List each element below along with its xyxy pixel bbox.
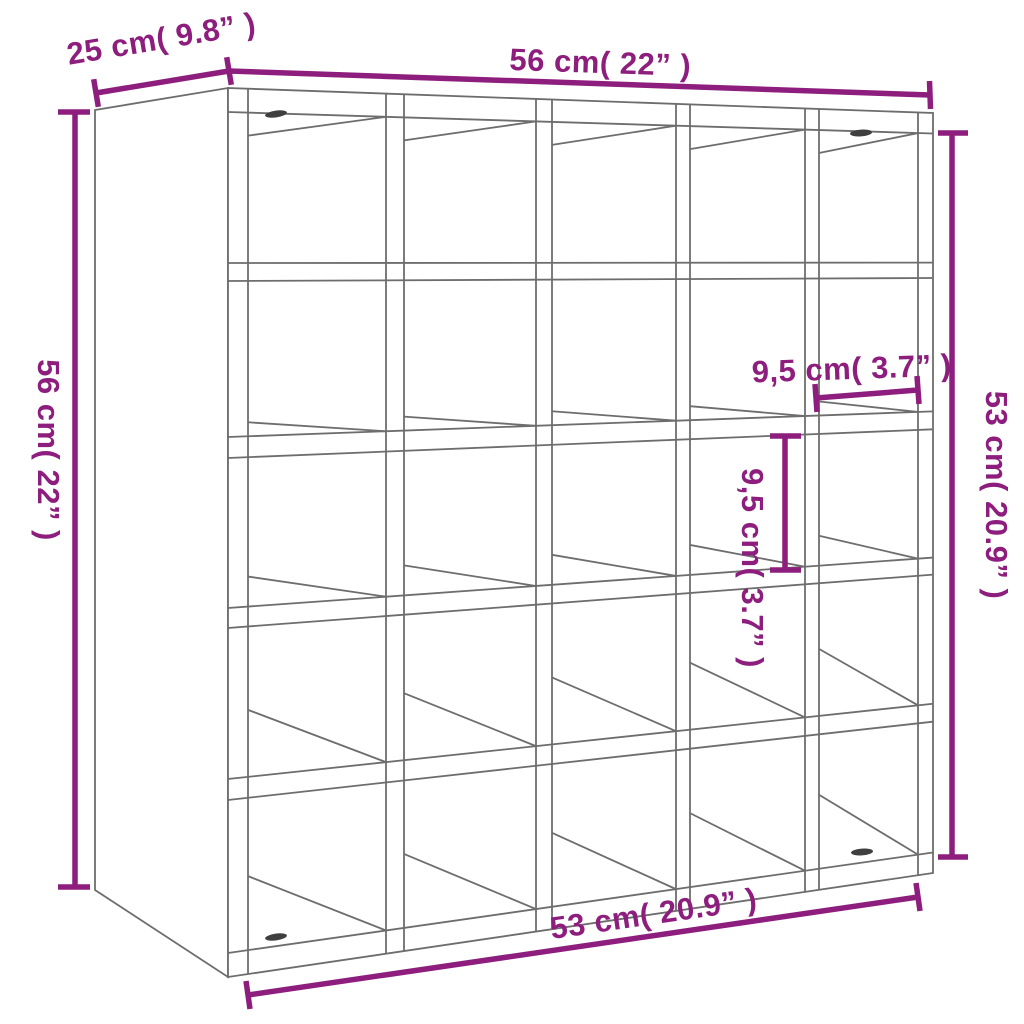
dimension-tick (246, 981, 250, 1009)
dimension-tick (930, 81, 931, 109)
dimension-height-right (938, 133, 968, 857)
dimension-width-top-label: 56 cm( 22” ) (509, 42, 692, 83)
cabinet-panels (95, 88, 933, 977)
diagram-canvas: 25 cm( 9.8” ) 56 cm( 22” ) 56 cm( 22” ) … (0, 0, 1024, 1024)
dimension-tick (916, 883, 920, 911)
dimension-cell-width-label: 9,5 cm( 3.7” ) (751, 348, 952, 390)
dimension-tick (94, 79, 99, 107)
product-dimension-diagram: 25 cm( 9.8” ) 56 cm( 22” ) 56 cm( 22” ) … (0, 0, 1024, 1024)
dimension-tick (815, 384, 817, 412)
dimension-depth-line (96, 71, 229, 93)
front-face (228, 88, 933, 977)
dimension-height-right-label: 53 cm( 20.9” ) (979, 391, 1014, 600)
dimension-height-left-label: 56 cm( 22” ) (31, 359, 66, 541)
dimension-cell-height-label: 9,5 cm( 3.7” ) (735, 468, 770, 668)
left-side-panel (95, 88, 228, 977)
cabinet-drawing (95, 88, 933, 977)
